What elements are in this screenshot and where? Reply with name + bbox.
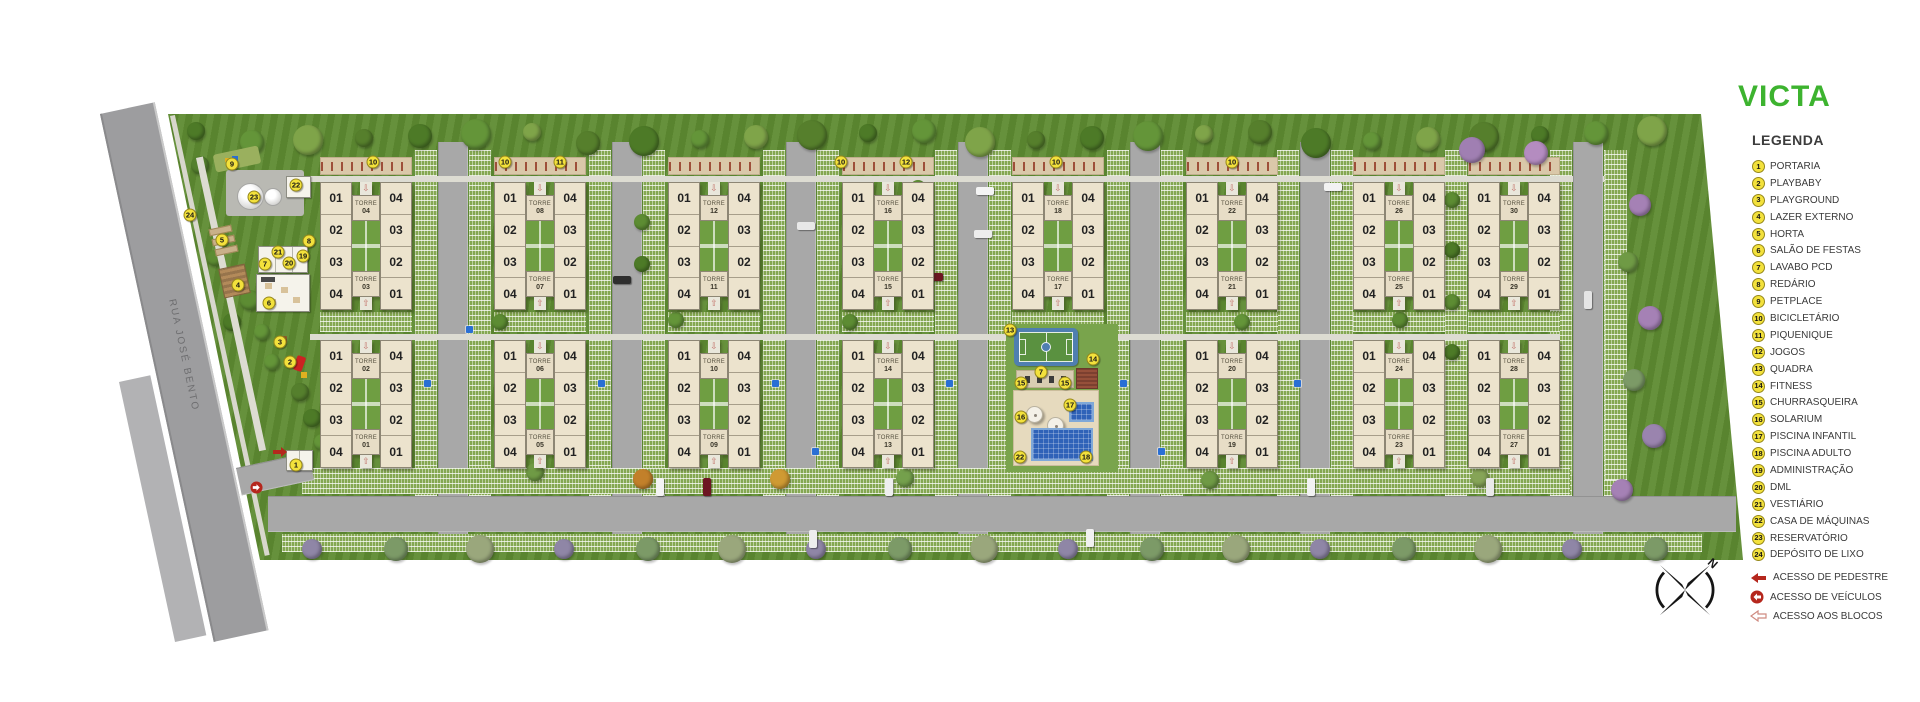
unit-label: 01 <box>381 436 411 467</box>
unit-label: 02 <box>1414 405 1444 437</box>
legend-number-badge: 16 <box>1752 413 1765 426</box>
legend-item-label: PIQUENIQUE <box>1770 330 1833 341</box>
legend-number-badge: 21 <box>1752 498 1765 511</box>
block-core: ⇩TORRE28TORRE27⇧ <box>1500 340 1528 468</box>
map-marker-5: 5 <box>216 234 229 247</box>
unit-label: 04 <box>555 341 585 373</box>
map-marker-1: 1 <box>290 459 303 472</box>
legend-access-pedestrian: ACESSO DE PEDESTRE <box>1750 568 1888 587</box>
unit-label: 02 <box>1247 247 1277 279</box>
block-core: ⇩TORRE26TORRE25⇧ <box>1385 182 1413 310</box>
legend-number-badge: 1 <box>1752 160 1765 173</box>
tree <box>1629 194 1651 216</box>
legend-item-label: PISCINA ADULTO <box>1770 448 1851 459</box>
unit-label: 02 <box>555 247 585 279</box>
tree <box>1416 127 1440 151</box>
tree <box>302 539 322 559</box>
block-access-arrow-icon: ⇩ <box>700 182 728 195</box>
parking-strip <box>817 150 839 496</box>
building-wing: 04030201 <box>554 182 586 310</box>
legend-access-blocks: ACESSO AOS BLOCOS <box>1750 607 1888 626</box>
map-marker-11: 11 <box>554 156 567 169</box>
block-core: ⇩TORRE22TORRE21⇧ <box>1218 182 1246 310</box>
courtyard <box>526 221 554 271</box>
unit-label: 03 <box>495 405 525 437</box>
building-wing: 01020304 <box>1186 182 1218 310</box>
site-plan-canvas: RUA JOSÉ BENTO <box>0 0 1920 702</box>
unit-label: 01 <box>1073 278 1103 309</box>
unit-label: 04 <box>1013 278 1043 309</box>
unit-label: 04 <box>321 278 351 309</box>
unit-label: 02 <box>1529 405 1559 437</box>
unit-label: 04 <box>1187 278 1217 309</box>
unit-label: 04 <box>729 183 759 215</box>
tower-label: TORRE19 <box>1218 429 1246 455</box>
unit-label: 03 <box>381 215 411 247</box>
tree <box>1562 539 1582 559</box>
accessible-parking-sign <box>1294 380 1301 387</box>
legend-item-label: REDÁRIO <box>1770 279 1816 290</box>
car <box>976 187 994 195</box>
map-marker-16: 16 <box>1015 411 1028 424</box>
tree <box>912 119 936 143</box>
accessible-parking-sign <box>946 380 953 387</box>
unit-label: 03 <box>555 215 585 247</box>
block-access-arrow-icon: ⇧ <box>526 297 554 310</box>
unit-label: 04 <box>495 436 525 467</box>
legend-number-badge: 20 <box>1752 481 1765 494</box>
parking-strip <box>763 150 785 496</box>
block-access-arrow-icon: ⇩ <box>352 340 380 353</box>
tree <box>634 256 650 272</box>
legend-number-badge: 19 <box>1752 464 1765 477</box>
unit-label: 03 <box>381 373 411 405</box>
block-access-arrow-icon: ⇧ <box>874 297 902 310</box>
building-wing: 01020304 <box>1468 182 1500 310</box>
block-access-arrow-icon: ⇩ <box>352 182 380 195</box>
block-access-arrow-icon: ⇧ <box>874 455 902 468</box>
unit-label: 04 <box>669 278 699 309</box>
tree <box>718 535 746 563</box>
legend-item: 17PISCINA INFANTIL <box>1752 428 1869 445</box>
unit-label: 01 <box>1013 183 1043 215</box>
legend-number-badge: 6 <box>1752 244 1765 257</box>
tree <box>1392 537 1416 561</box>
legend-item-label: PLAYGROUND <box>1770 195 1839 206</box>
building-wing: 01020304 <box>1353 340 1385 468</box>
tree <box>668 312 684 328</box>
tower-label: TORRE21 <box>1218 271 1246 297</box>
perimeter-road <box>268 496 1736 532</box>
unit-label: 03 <box>1073 215 1103 247</box>
block-access-arrow-icon: ⇧ <box>1218 297 1246 310</box>
building-wing: 04030201 <box>1413 182 1445 310</box>
legend-number-badge: 13 <box>1752 363 1765 376</box>
compass-rose-icon: N <box>1650 548 1720 630</box>
map-marker-4: 4 <box>232 279 245 292</box>
unit-label: 02 <box>669 215 699 247</box>
block-core: ⇩TORRE18TORRE17⇧ <box>1044 182 1072 310</box>
unit-label: 04 <box>843 278 873 309</box>
building-wing: 01020304 <box>494 340 526 468</box>
parking-strip <box>935 150 957 496</box>
reservoir-tank <box>264 188 282 206</box>
tree <box>461 119 491 149</box>
legend-item-label: JOGOS <box>1770 347 1805 358</box>
legend-item: 7LAVABO PCD <box>1752 259 1869 276</box>
tower-label: TORRE29 <box>1500 271 1528 297</box>
block-access-arrow-icon: ⇩ <box>526 340 554 353</box>
tree <box>1459 137 1485 163</box>
unit-label: 03 <box>1414 215 1444 247</box>
legend-item-label: SOLARIUM <box>1770 414 1822 425</box>
unit-label: 01 <box>1354 183 1384 215</box>
building-wing: 04030201 <box>1072 182 1104 310</box>
unit-label: 01 <box>903 436 933 467</box>
block-access-arrow-icon: ⇩ <box>1500 182 1528 195</box>
tree <box>254 324 270 340</box>
unit-label: 01 <box>669 183 699 215</box>
map-marker-9: 9 <box>226 158 239 171</box>
courtyard <box>1500 221 1528 271</box>
unit-label: 03 <box>1529 215 1559 247</box>
legend-number-badge: 22 <box>1752 515 1765 528</box>
unit-label: 03 <box>1187 247 1217 279</box>
map-marker-12: 12 <box>900 156 913 169</box>
unit-label: 03 <box>1247 373 1277 405</box>
car <box>1307 478 1315 496</box>
map-marker-10: 10 <box>1226 156 1239 169</box>
block-access-arrow-icon: ⇧ <box>700 455 728 468</box>
tower-label: TORRE17 <box>1044 271 1072 297</box>
parking-strip <box>643 150 665 496</box>
tower-label: TORRE12 <box>700 195 728 221</box>
legend-item-label: CHURRASQUEIRA <box>1770 397 1858 408</box>
tree <box>1444 294 1460 310</box>
building-wing: 01020304 <box>842 182 874 310</box>
tower-label: TORRE05 <box>526 429 554 455</box>
unit-label: 03 <box>843 247 873 279</box>
unit-label: 03 <box>1013 247 1043 279</box>
legend-item-label: LAZER EXTERNO <box>1770 212 1853 223</box>
legend-number-badge: 10 <box>1752 312 1765 325</box>
legend-item-label: FITNESS <box>1770 381 1812 392</box>
unit-label: 02 <box>495 215 525 247</box>
tree <box>691 130 709 148</box>
tower-block-17-18: 01020304⇩TORRE18TORRE17⇧04030201 <box>1012 182 1104 310</box>
tower-label: TORRE30 <box>1500 195 1528 221</box>
parking-strip <box>589 150 611 496</box>
unit-label: 03 <box>729 373 759 405</box>
unit-label: 03 <box>1247 215 1277 247</box>
unit-label: 02 <box>495 373 525 405</box>
tree <box>629 126 659 156</box>
unit-label: 02 <box>729 247 759 279</box>
map-marker-8: 8 <box>303 235 316 248</box>
unit-label: 02 <box>381 405 411 437</box>
unit-label: 03 <box>843 405 873 437</box>
courtyard <box>874 221 902 271</box>
courtyard <box>1385 379 1413 429</box>
map-marker-22: 22 <box>1014 451 1027 464</box>
tree <box>1301 128 1331 158</box>
unit-label: 01 <box>1354 341 1384 373</box>
block-access-arrow-icon: ⇩ <box>700 340 728 353</box>
tower-label: TORRE22 <box>1218 195 1246 221</box>
unit-label: 01 <box>321 183 351 215</box>
legend-item: 20DML <box>1752 479 1869 496</box>
block-access-arrow-icon: ⇩ <box>1044 182 1072 195</box>
unit-label: 02 <box>843 215 873 247</box>
block-access-arrow-icon: ⇧ <box>1500 297 1528 310</box>
tree <box>187 122 205 140</box>
unit-label: 03 <box>1414 373 1444 405</box>
block-access-arrow-icon: ⇧ <box>1500 455 1528 468</box>
building-wing: 04030201 <box>380 182 412 310</box>
car <box>1584 291 1592 309</box>
tree <box>1623 369 1645 391</box>
legend-item: 5HORTA <box>1752 226 1869 243</box>
unit-label: 04 <box>843 436 873 467</box>
tree <box>1637 116 1667 146</box>
unit-label: 03 <box>729 215 759 247</box>
unit-label: 02 <box>1187 373 1217 405</box>
map-marker-20: 20 <box>283 257 296 270</box>
accessible-parking-sign <box>1158 448 1165 455</box>
tower-label: TORRE10 <box>700 353 728 379</box>
tree <box>1444 192 1460 208</box>
map-marker-7: 7 <box>1035 366 1048 379</box>
tower-label: TORRE09 <box>700 429 728 455</box>
legend-number-badge: 7 <box>1752 261 1765 274</box>
tower-label: TORRE11 <box>700 271 728 297</box>
tree <box>1638 306 1662 330</box>
tower-label: TORRE07 <box>526 271 554 297</box>
map-marker-15: 15 <box>1059 377 1072 390</box>
tree <box>384 537 408 561</box>
tower-block-23-24: 01020304⇩TORRE24TORRE23⇧04030201 <box>1353 340 1445 468</box>
legend-number-badge: 23 <box>1752 532 1765 545</box>
tree <box>1642 424 1666 448</box>
legend-number-badge: 3 <box>1752 194 1765 207</box>
courtyard <box>352 221 380 271</box>
legend-item: 2PLAYBABY <box>1752 175 1869 192</box>
unit-label: 03 <box>1469 405 1499 437</box>
unit-label: 01 <box>1529 436 1559 467</box>
unit-label: 04 <box>1354 436 1384 467</box>
tree <box>303 409 321 427</box>
map-marker-14: 14 <box>1087 353 1100 366</box>
unit-label: 01 <box>669 341 699 373</box>
unit-label: 01 <box>495 341 525 373</box>
unit-label: 04 <box>1073 183 1103 215</box>
courtyard <box>1218 221 1246 271</box>
courtyard <box>700 379 728 429</box>
legend-item-label: PISCINA INFANTIL <box>1770 431 1856 442</box>
legend-item: 24DEPÓSITO DE LIXO <box>1752 546 1869 563</box>
unit-label: 03 <box>1469 247 1499 279</box>
courtyard <box>874 379 902 429</box>
pedestrian-arrow-icon <box>1750 572 1767 584</box>
legend-item: 16SOLARIUM <box>1752 411 1869 428</box>
accessible-parking-sign <box>1120 380 1127 387</box>
tree <box>842 314 858 330</box>
unit-label: 04 <box>1529 341 1559 373</box>
building-wing: 04030201 <box>1246 182 1278 310</box>
tower-block-13-14: 01020304⇩TORRE14TORRE13⇧04030201 <box>842 340 934 468</box>
unit-label: 04 <box>903 183 933 215</box>
block-core: ⇩TORRE24TORRE23⇧ <box>1385 340 1413 468</box>
legend-item: 23RESERVATÓRIO <box>1752 530 1869 547</box>
tree <box>293 125 323 155</box>
parking-strip <box>469 150 491 496</box>
bike-rack-strip <box>842 157 934 175</box>
map-marker-13: 13 <box>1004 324 1017 337</box>
legend-item: 4LAZER EXTERNO <box>1752 209 1869 226</box>
unit-label: 03 <box>669 247 699 279</box>
legend-item-label: RESERVATÓRIO <box>1770 533 1848 544</box>
legend-item-label: SALÃO DE FESTAS <box>1770 245 1861 256</box>
right-road <box>1573 150 1603 496</box>
unit-label: 01 <box>843 341 873 373</box>
block-access-arrow-icon: ⇧ <box>700 297 728 310</box>
tree <box>1027 131 1045 149</box>
block-access-arrow-icon: ⇩ <box>874 340 902 353</box>
unit-label: 04 <box>669 436 699 467</box>
unit-label: 01 <box>321 341 351 373</box>
tower-label: TORRE01 <box>352 429 380 455</box>
legend-number-badge: 4 <box>1752 211 1765 224</box>
tree <box>1195 125 1213 143</box>
map-marker-19: 19 <box>297 250 310 263</box>
bike-rack-strip <box>1353 157 1445 175</box>
map-marker-23: 23 <box>248 191 261 204</box>
block-access-arrow-icon: ⇧ <box>526 455 554 468</box>
unit-label: 01 <box>1469 341 1499 373</box>
amenity-area <box>1006 324 1118 472</box>
legend-item: 11PIQUENIQUE <box>1752 327 1869 344</box>
tree <box>291 383 309 401</box>
building-wing: 01020304 <box>1353 182 1385 310</box>
block-access-arrow-icon: ⇩ <box>1218 340 1246 353</box>
block-access-arrow-icon: ⇩ <box>1385 340 1413 353</box>
legend-item-label: BICICLETÁRIO <box>1770 313 1839 324</box>
tree <box>1363 132 1381 150</box>
accessible-parking-sign <box>812 448 819 455</box>
unit-label: 03 <box>555 373 585 405</box>
tree <box>1058 539 1078 559</box>
legend-item-label: PLAYBABY <box>1770 178 1822 189</box>
car <box>656 478 664 496</box>
block-access-arrow-icon: ⇩ <box>526 182 554 195</box>
map-marker-17: 17 <box>1064 399 1077 412</box>
tree <box>264 354 280 370</box>
tree <box>744 125 768 149</box>
unit-label: 02 <box>1354 373 1384 405</box>
unit-label: 02 <box>903 247 933 279</box>
legend-number-badge: 15 <box>1752 396 1765 409</box>
parking-strip <box>1605 150 1627 480</box>
legend-number-badge: 17 <box>1752 430 1765 443</box>
block-core: ⇩TORRE06TORRE05⇧ <box>526 340 554 468</box>
legend-number-badge: 11 <box>1752 329 1765 342</box>
car <box>1086 529 1094 547</box>
legend-item-label: PORTARIA <box>1770 161 1820 172</box>
building-wing: 04030201 <box>554 340 586 468</box>
courtyard <box>1500 379 1528 429</box>
unit-label: 01 <box>495 183 525 215</box>
map-marker-10: 10 <box>367 156 380 169</box>
legend-item: 19ADMINISTRAÇÃO <box>1752 462 1869 479</box>
legend-item-label: PETPLACE <box>1770 296 1822 307</box>
tree <box>523 123 541 141</box>
tree <box>896 469 914 487</box>
tower-label: TORRE26 <box>1385 195 1413 221</box>
bike-rack-strip <box>668 157 760 175</box>
unit-label: 01 <box>1469 183 1499 215</box>
unit-label: 03 <box>1354 247 1384 279</box>
building-wing: 04030201 <box>902 182 934 310</box>
building-wing: 04030201 <box>1413 340 1445 468</box>
unit-label: 01 <box>1247 278 1277 309</box>
legend-item-label: DML <box>1770 482 1791 493</box>
vehicle-arrow-icon <box>1750 590 1764 604</box>
unit-label: 02 <box>1469 373 1499 405</box>
legend-item-label: DEPÓSITO DE LIXO <box>1770 549 1864 560</box>
unit-label: 01 <box>729 436 759 467</box>
unit-label: 02 <box>1073 247 1103 279</box>
unit-label: 01 <box>1529 278 1559 309</box>
block-core: ⇩TORRE04TORRE03⇧ <box>352 182 380 310</box>
unit-label: 04 <box>495 278 525 309</box>
map-marker-22: 22 <box>290 179 303 192</box>
legend-number-badge: 14 <box>1752 380 1765 393</box>
block-core: ⇩TORRE30TORRE29⇧ <box>1500 182 1528 310</box>
tower-label: TORRE15 <box>874 271 902 297</box>
tower-label: TORRE20 <box>1218 353 1246 379</box>
map-marker-7: 7 <box>259 258 272 271</box>
block-access-arrow-icon: ⇩ <box>1385 182 1413 195</box>
block-access-arrow-icon: ⇩ <box>874 182 902 195</box>
tower-block-19-20: 01020304⇩TORRE20TORRE19⇧04030201 <box>1186 340 1278 468</box>
courtyard <box>1385 221 1413 271</box>
block-access-arrow-icon: ⇩ <box>1500 340 1528 353</box>
tower-label: TORRE14 <box>874 353 902 379</box>
unit-label: 02 <box>843 373 873 405</box>
tower-block-01-02: 01020304⇩TORRE02TORRE01⇧04030201 <box>320 340 412 468</box>
map-marker-2: 2 <box>284 356 297 369</box>
legend-item-label: ADMINISTRAÇÃO <box>1770 465 1853 476</box>
legend-items: 1PORTARIA2PLAYBABY3PLAYGROUND4LAZER EXTE… <box>1752 158 1869 563</box>
parking-strip <box>415 150 437 496</box>
tree <box>636 537 660 561</box>
unit-label: 02 <box>321 215 351 247</box>
unit-label: 03 <box>903 215 933 247</box>
accessible-parking-sign <box>424 380 431 387</box>
tower-label: TORRE02 <box>352 353 380 379</box>
building-wing: 01020304 <box>320 182 352 310</box>
unit-label: 03 <box>1529 373 1559 405</box>
unit-label: 04 <box>1529 183 1559 215</box>
parking-strip <box>1277 150 1299 496</box>
building-wing: 01020304 <box>842 340 874 468</box>
legend-access-label: ACESSO DE PEDESTRE <box>1773 572 1888 583</box>
car <box>809 530 817 548</box>
unit-label: 02 <box>669 373 699 405</box>
building-wing: 01020304 <box>494 182 526 310</box>
tree <box>1222 535 1250 563</box>
unit-label: 03 <box>1187 405 1217 437</box>
